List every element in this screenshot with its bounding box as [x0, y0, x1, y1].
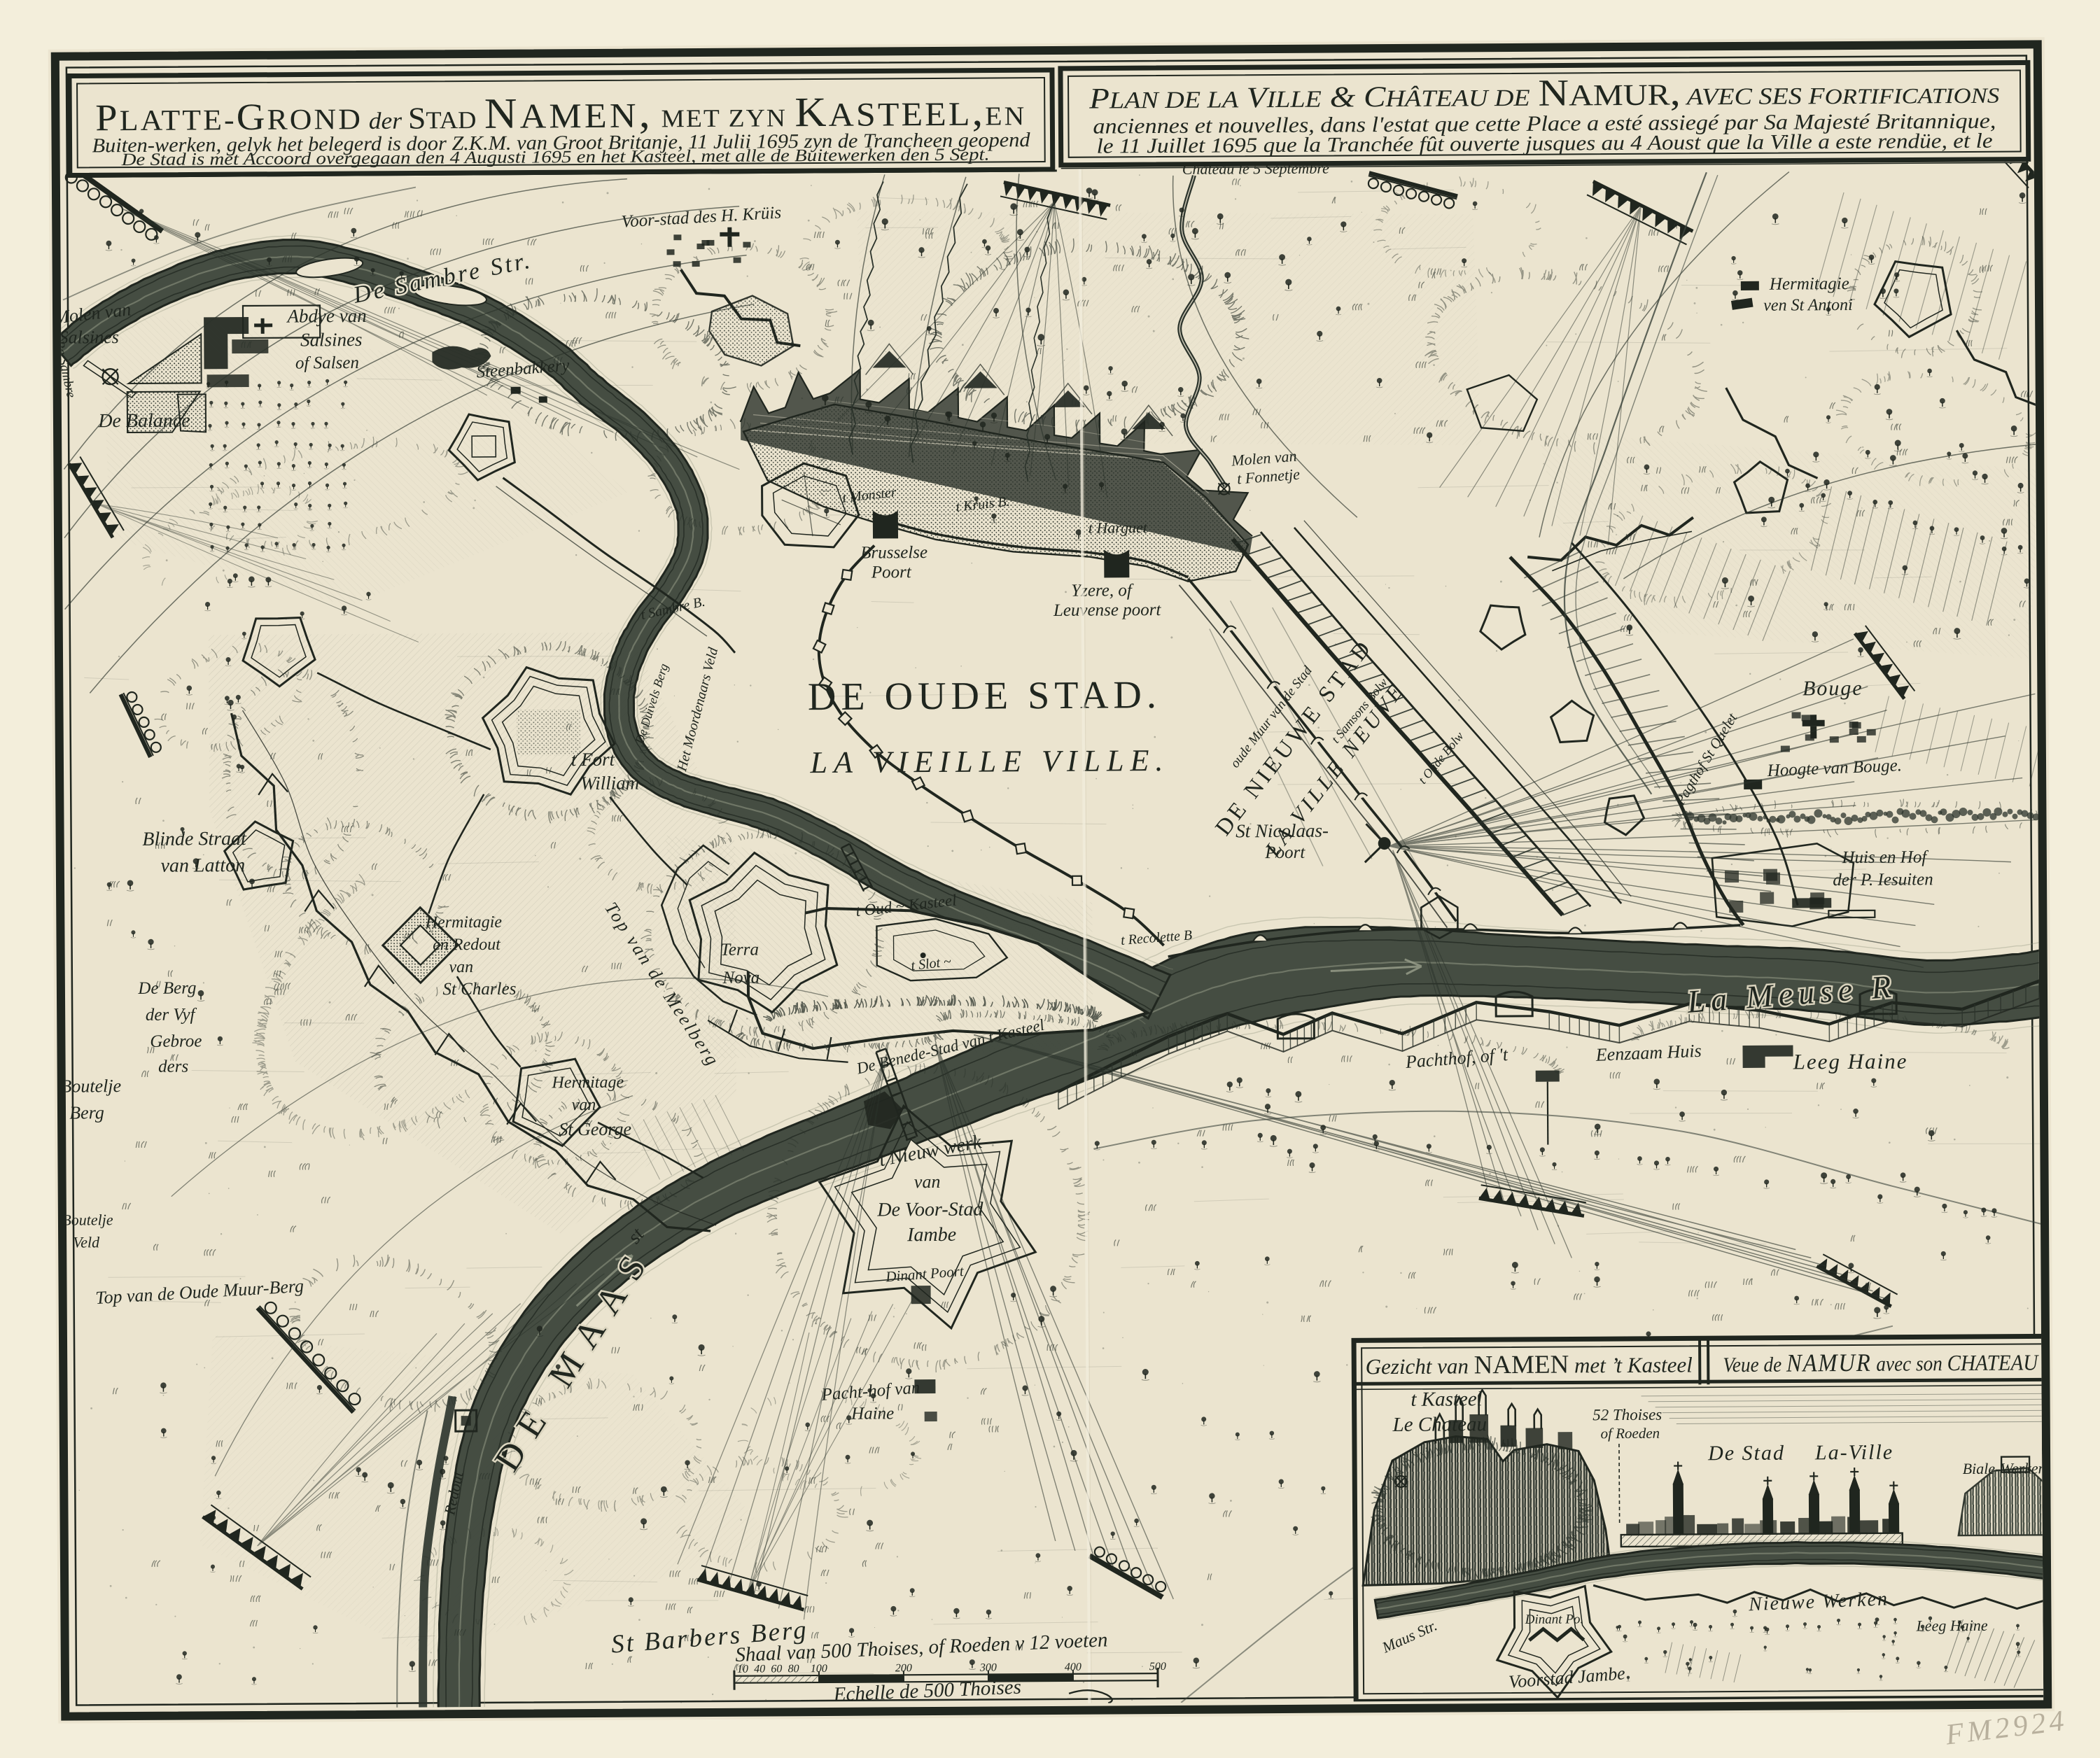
svg-text:La-Ville: La-Ville: [1814, 1441, 1893, 1465]
svg-text:10: 10: [737, 1664, 748, 1675]
svg-text:100: 100: [811, 1663, 827, 1675]
svg-text:Veld: Veld: [73, 1233, 100, 1251]
svg-text:Dinant Po.: Dinant Po.: [1525, 1612, 1584, 1627]
svg-text:of Roeden: of Roeden: [1600, 1425, 1660, 1442]
svg-text:DE OUDE STAD.: DE OUDE STAD.: [808, 673, 1161, 719]
svg-text:60: 60: [771, 1663, 782, 1675]
svg-text:Leeg Haine: Leeg Haine: [1915, 1617, 1987, 1635]
svg-text:Leeg Haine: Leeg Haine: [1793, 1049, 1908, 1074]
svg-text:400: 400: [1065, 1661, 1081, 1673]
svg-text:der Vyf: der Vyf: [146, 1005, 197, 1024]
svg-text:De Stad: De Stad: [1707, 1442, 1785, 1465]
svg-text:De Voor-Stad: De Voor-Stad: [876, 1199, 983, 1221]
svg-text:Poort: Poort: [871, 563, 912, 582]
svg-text:500: 500: [1149, 1661, 1166, 1673]
svg-text:Abdye van: Abdye van: [286, 305, 366, 327]
svg-text:Gebroe: Gebroe: [150, 1032, 202, 1050]
svg-text:t Kasteel: t Kasteel: [1410, 1388, 1482, 1411]
svg-text:der P. Iesuiten: der P. Iesuiten: [1833, 870, 1933, 889]
svg-text:Brusselse: Brusselse: [860, 543, 927, 563]
svg-text:LA VIEILLE VILLE.: LA VIEILLE VILLE.: [809, 743, 1169, 780]
svg-text:Boutelje: Boutelje: [60, 1076, 121, 1097]
svg-text:Haine: Haine: [850, 1404, 894, 1423]
svg-text:Leuvense poort: Leuvense poort: [1053, 600, 1162, 620]
svg-text:t Harguet: t Harguet: [1088, 519, 1148, 537]
svg-text:40: 40: [754, 1664, 765, 1675]
svg-text:Iambe: Iambe: [906, 1224, 956, 1246]
svg-text:80: 80: [788, 1663, 799, 1675]
svg-text:Château le 5 Septembre: Château le 5 Septembre: [1182, 160, 1329, 178]
svg-text:52 Thoises: 52 Thoises: [1592, 1406, 1662, 1424]
svg-text:van: van: [914, 1172, 941, 1192]
svg-text:300: 300: [979, 1661, 997, 1673]
svg-text:De Berg: De Berg: [137, 978, 196, 998]
svg-text:Gezicht van NAMEN met ’t Kaste: Gezicht van NAMEN met ’t Kasteel: [1366, 1349, 1693, 1380]
svg-text:Berg: Berg: [69, 1102, 104, 1123]
svg-text:Yzere, of: Yzere, of: [1071, 581, 1134, 600]
svg-text:Boutelje: Boutelje: [62, 1211, 113, 1228]
svg-text:200: 200: [895, 1662, 912, 1674]
svg-text:ven St Antoni: ven St Antoni: [1763, 296, 1853, 315]
